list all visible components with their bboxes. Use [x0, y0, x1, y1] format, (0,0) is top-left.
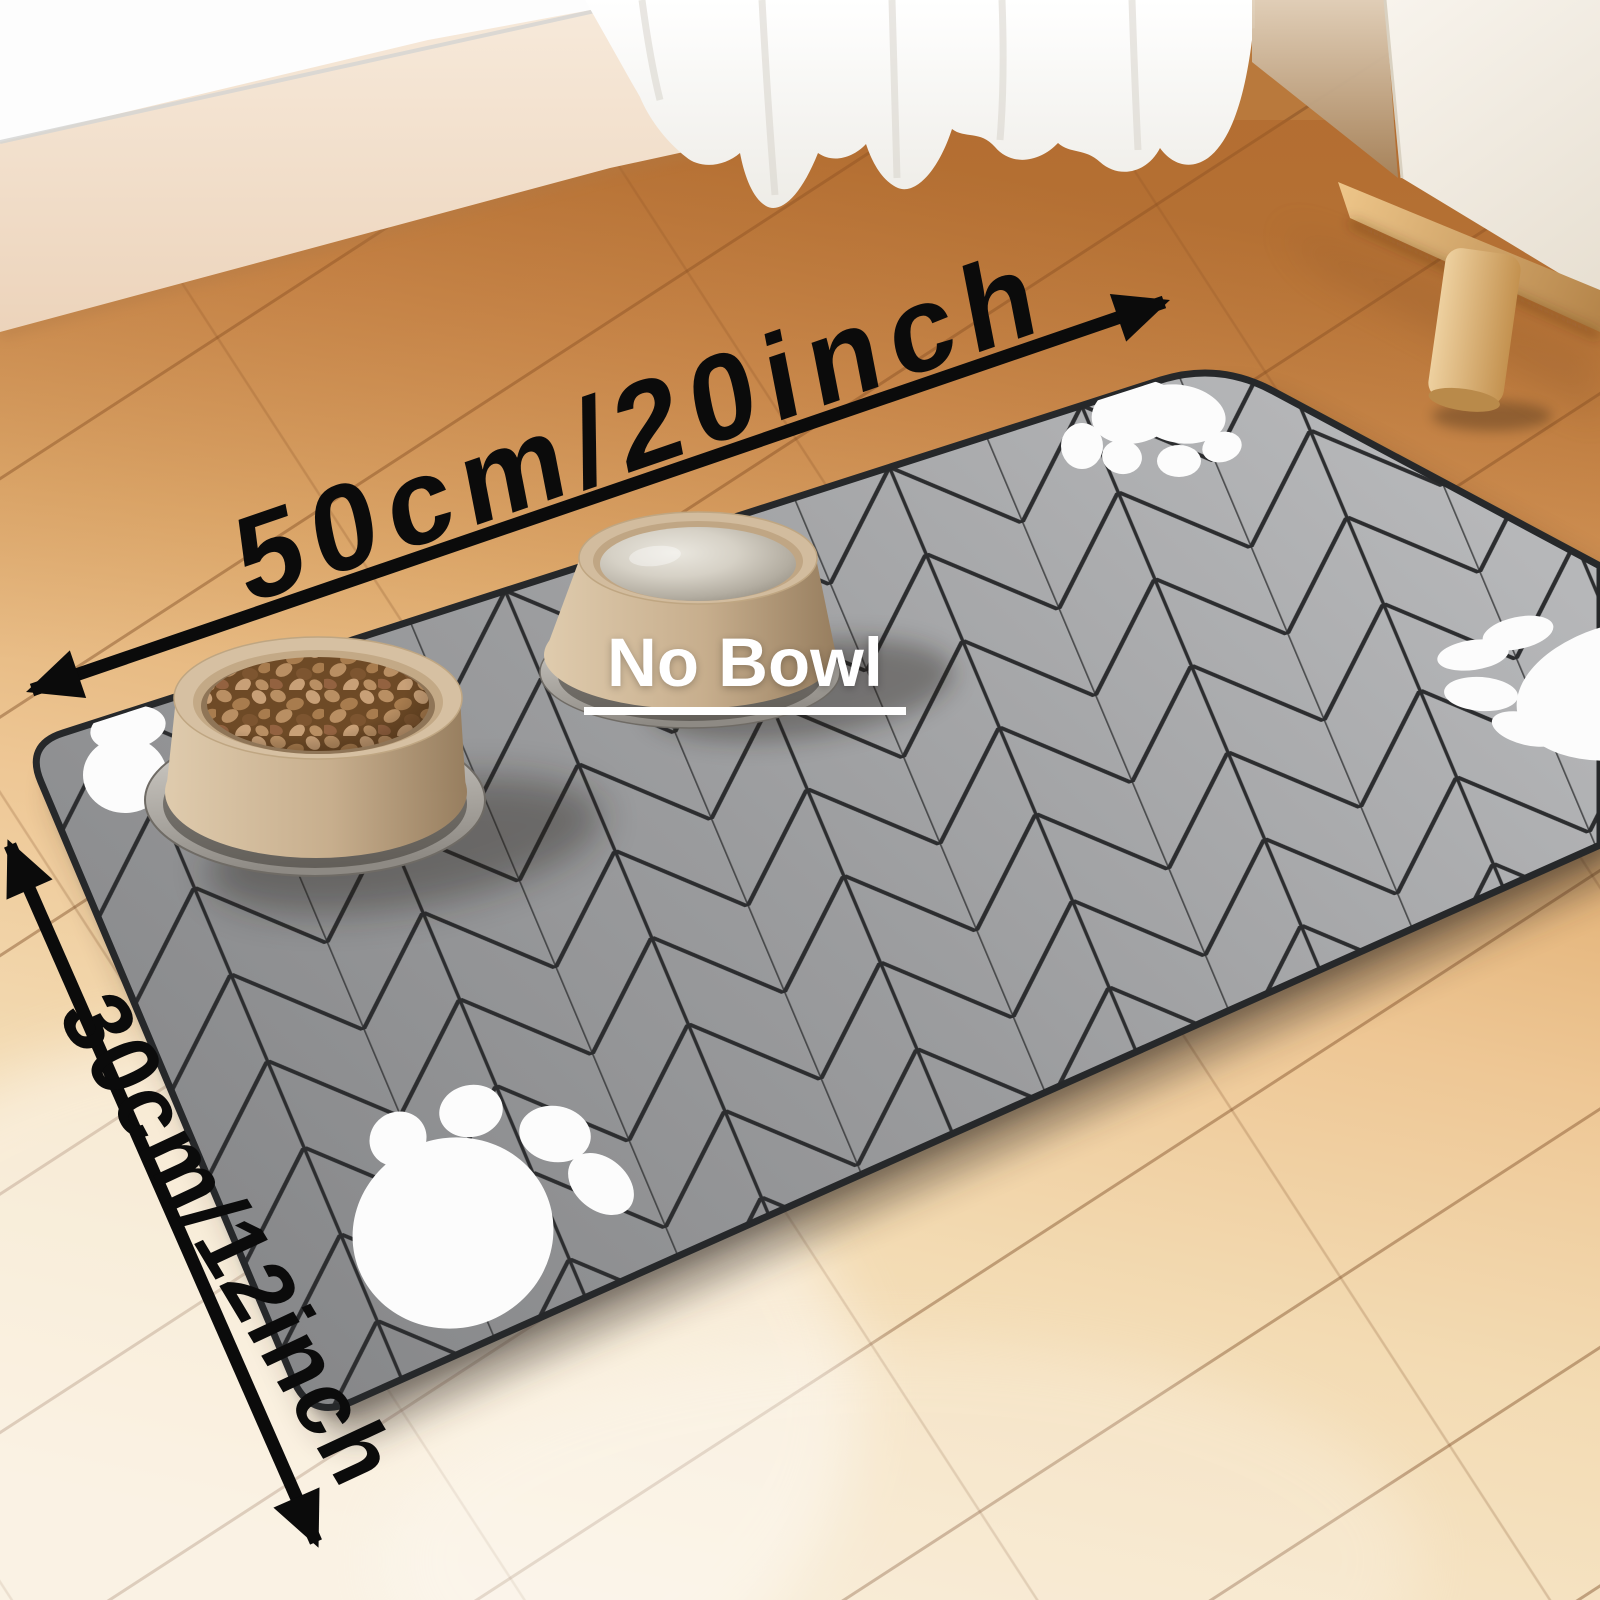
water [600, 527, 796, 601]
no-bowl-label: No Bowl [584, 628, 906, 715]
pet-feeding-mat-product-photo: 50cm/20inch 30cm/12inch No Bowl [0, 0, 1600, 1600]
